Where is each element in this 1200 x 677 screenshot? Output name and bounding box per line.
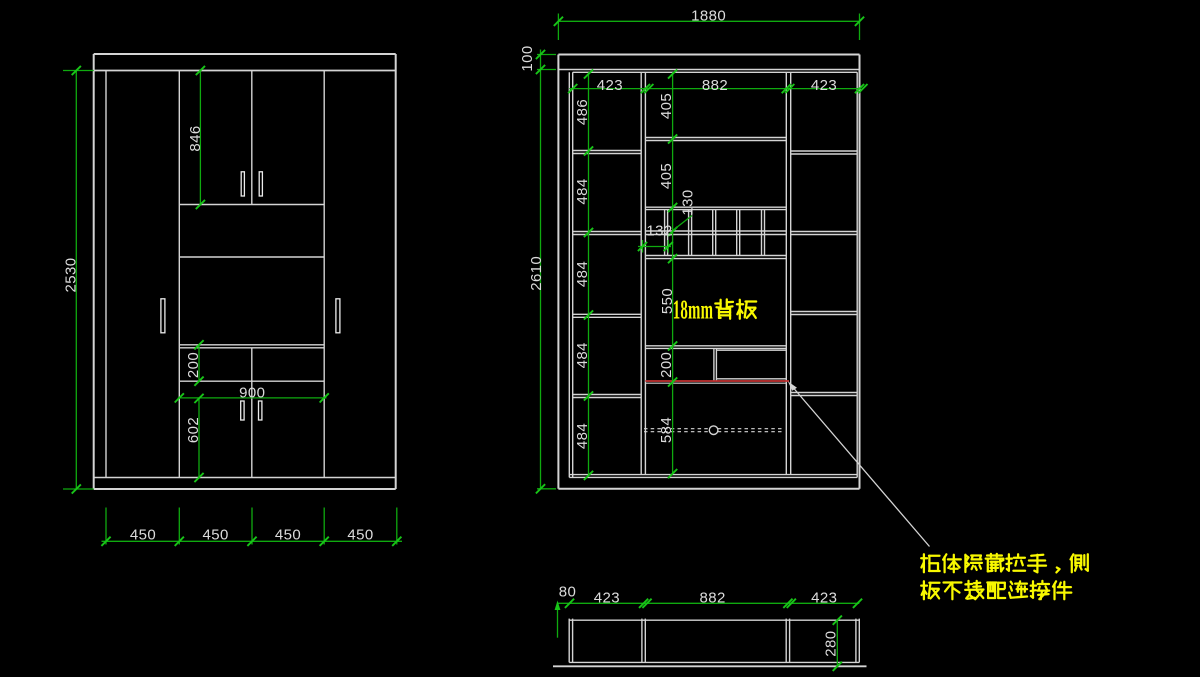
svg-text:484: 484 (574, 423, 591, 449)
svg-text:280: 280 (822, 630, 839, 656)
svg-text:2530: 2530 (62, 258, 79, 293)
svg-text:882: 882 (702, 77, 728, 94)
svg-text:100: 100 (519, 45, 536, 71)
svg-text:423: 423 (594, 590, 620, 607)
svg-text:200: 200 (185, 352, 202, 378)
svg-text:405: 405 (658, 163, 675, 189)
svg-text:2610: 2610 (528, 256, 545, 291)
svg-text:450: 450 (130, 526, 156, 543)
svg-text:450: 450 (275, 526, 301, 543)
svg-text:484: 484 (574, 261, 591, 287)
svg-text:132: 132 (646, 223, 672, 240)
svg-text:1880: 1880 (691, 7, 726, 24)
svg-text:423: 423 (811, 77, 837, 94)
svg-text:900: 900 (239, 384, 265, 401)
svg-text:18mm: 18mm (673, 295, 714, 325)
svg-text:602: 602 (185, 417, 202, 443)
svg-text:882: 882 (699, 590, 725, 607)
svg-text:450: 450 (202, 526, 228, 543)
svg-text:484: 484 (574, 342, 591, 368)
svg-text:423: 423 (597, 77, 623, 94)
svg-text:450: 450 (347, 526, 373, 543)
svg-text:405: 405 (658, 93, 675, 119)
svg-text:846: 846 (187, 125, 204, 151)
svg-text:130: 130 (679, 189, 696, 215)
svg-text:80: 80 (559, 584, 577, 601)
svg-text:484: 484 (574, 178, 591, 204)
svg-text:486: 486 (574, 99, 591, 125)
svg-text:423: 423 (811, 590, 837, 607)
svg-text:584: 584 (658, 417, 675, 443)
svg-text:200: 200 (658, 352, 675, 378)
